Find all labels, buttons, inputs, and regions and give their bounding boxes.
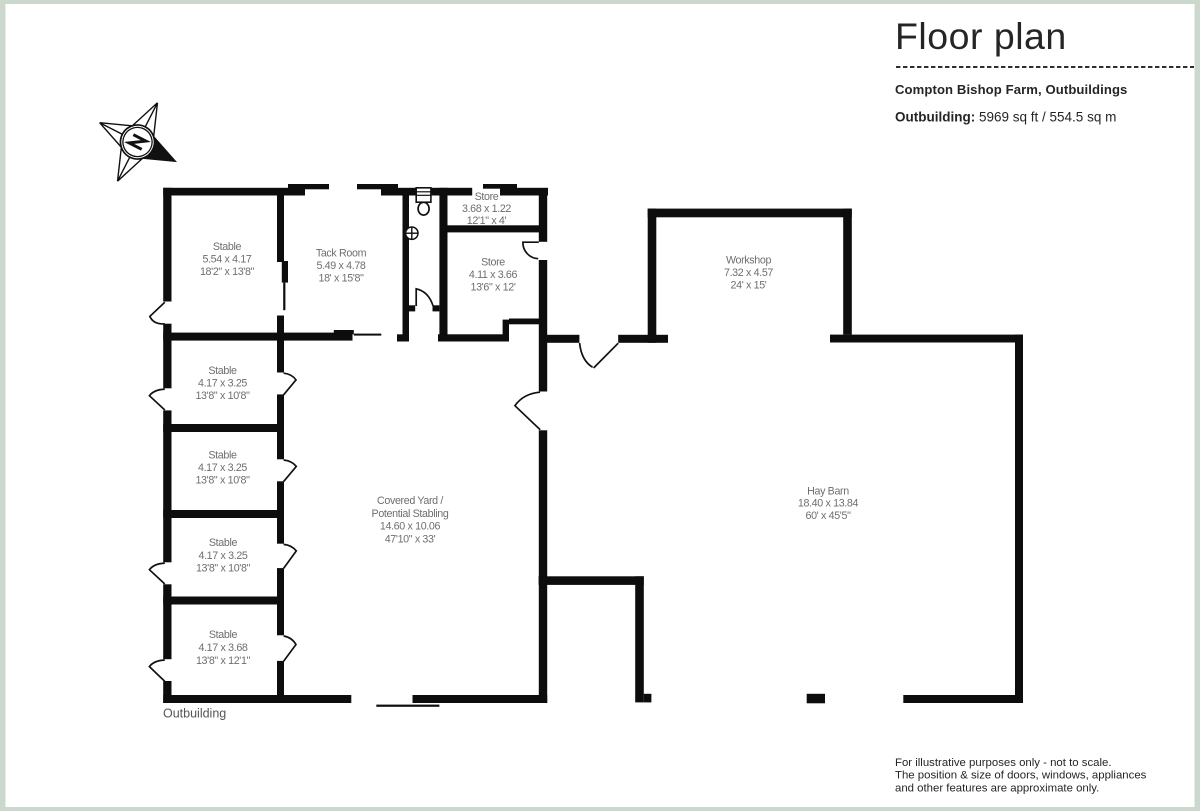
svg-text:The position & size of doors,: The position & size of doors, windows, a… <box>895 770 1147 782</box>
svg-text:Compton Bishop Farm, Outbuildi: Compton Bishop Farm, Outbuildings <box>895 82 1127 97</box>
svg-text:Outbuilding: 5969 sq ft / 554.: Outbuilding: 5969 sq ft / 554.5 sq m <box>895 110 1116 125</box>
svg-text:Outbuilding: Outbuilding <box>163 707 226 721</box>
svg-text:Tack Room5.49 x 4.7818' x 15'8: Tack Room5.49 x 4.7818' x 15'8" <box>316 247 367 284</box>
svg-text:For illustrative purposes only: For illustrative purposes only - not to … <box>895 757 1112 769</box>
svg-text:Workshop7.32 x 4.5724' x 15': Workshop7.32 x 4.5724' x 15' <box>724 255 773 292</box>
svg-text:Floor plan: Floor plan <box>895 15 1067 57</box>
svg-text:and other features are approxi: and other features are approximate only. <box>895 782 1099 794</box>
